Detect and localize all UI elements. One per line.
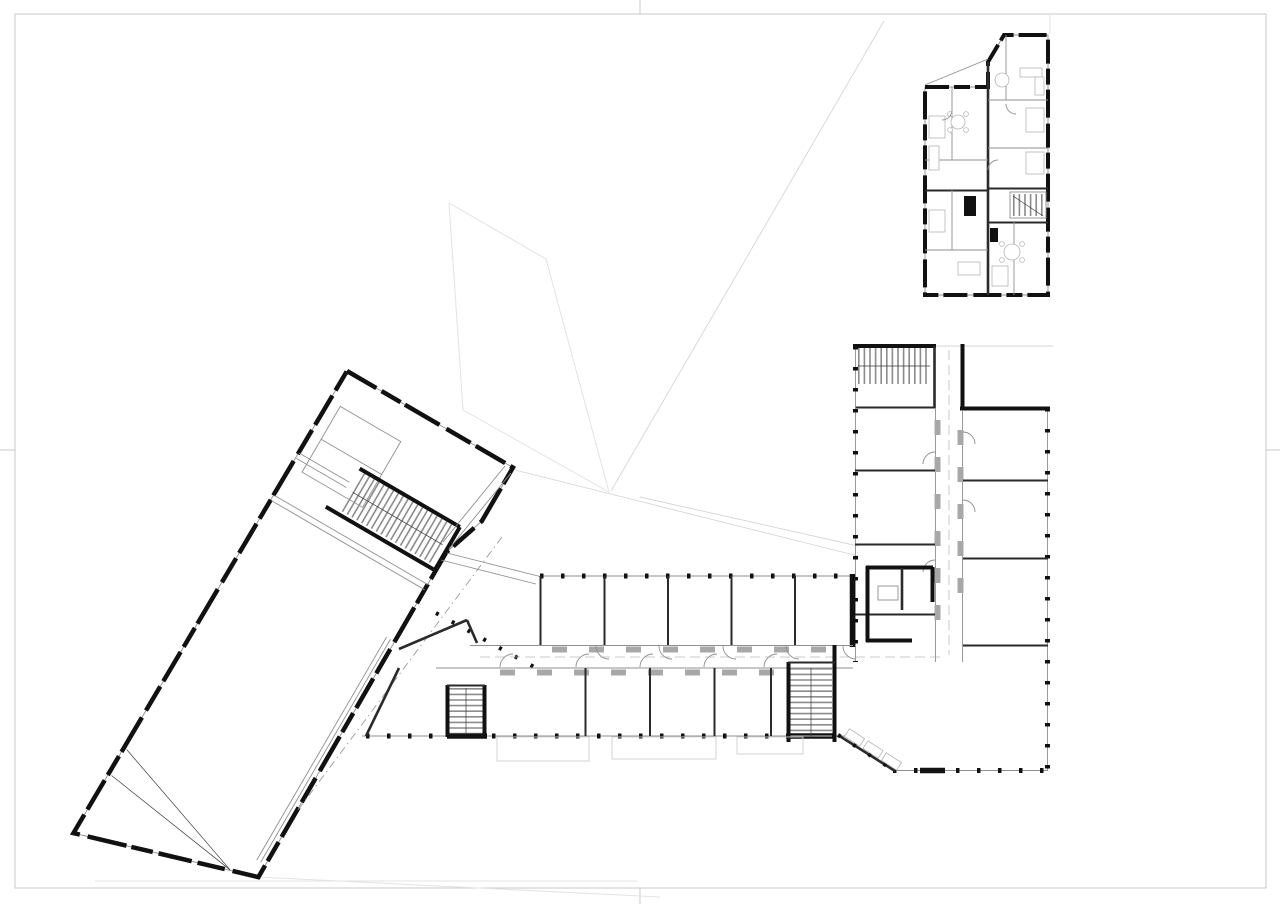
seminar-seats [968,418,1044,474]
door-arc [963,432,975,444]
entry-walk-line-1 [299,453,349,482]
apartment-stair [1010,192,1046,218]
office-desks [860,413,931,466]
shear-wall [990,228,998,242]
hall-exterior-wall [73,369,513,904]
open-area-tables [968,652,1044,762]
classroom-desks [610,583,663,637]
hall-overhang-dashed [298,537,502,810]
east-wing [838,344,1050,771]
terrace-outline [612,737,716,759]
door-arc [640,654,653,667]
site-lines [95,14,1053,897]
wedge-wall-1 [399,620,467,649]
link-wedge [399,553,542,668]
site-boundary-diagonal [611,21,884,491]
group-room-furniture [402,678,444,730]
classroom-desks [546,583,599,637]
door-arc [576,654,589,667]
office-desks [860,477,931,540]
wing-stair-west [447,685,485,737]
service-core [866,566,933,642]
foyer-side-room-divider [321,439,381,474]
angled-sofas [845,729,902,770]
door-arc [988,160,998,170]
hall-sill-line [73,369,513,904]
door-arc [1006,104,1016,114]
classroom-desks [656,676,708,732]
wing-stair-east [788,645,835,742]
group-room-tables [492,676,580,732]
apartment-furniture [929,68,1044,286]
wedge-column-row [436,613,536,668]
classroom-desks [592,676,644,732]
apartment-roof-line [925,59,988,85]
east-wing-stairwell [853,346,936,408]
stair-rail [1013,196,1043,216]
sheet-frame [0,0,1280,904]
door-arc [764,654,777,667]
door-arc [963,500,975,512]
classroom-desks [737,583,790,637]
apartment-building [925,35,1048,295]
floor-plan-svg: Architectural floor plan drawing — schoo… [0,0,1280,904]
hall-bench-line-2 [261,639,391,862]
door-arc [923,452,935,464]
shear-wall [964,196,976,216]
door-arc [704,654,717,667]
terrace-outline [737,737,803,754]
site-line-bottom-diagonal [258,877,660,897]
computer-desks [968,564,1044,638]
core-counter [878,586,898,600]
hall-floor-line-2 [101,750,257,870]
hall-main-stair [326,464,460,571]
office-desks [860,550,931,610]
classroom-desks [800,583,848,637]
door-arc [500,654,513,667]
canopy-line-2 [640,497,858,546]
seminar-seats [968,488,1044,552]
terrace-outline [497,737,589,761]
canopy-line-1 [515,470,858,556]
sheet-border [15,14,1266,888]
open-area-tables [848,652,960,760]
sports-hall-building [73,369,513,904]
drawing-sheet: Architectural floor plan drawing — schoo… [0,0,1280,904]
classroom-desks [674,583,727,637]
hall-bench-line-1 [257,637,387,860]
upper-volume-outline [449,203,609,492]
group-room-tables [720,674,766,732]
